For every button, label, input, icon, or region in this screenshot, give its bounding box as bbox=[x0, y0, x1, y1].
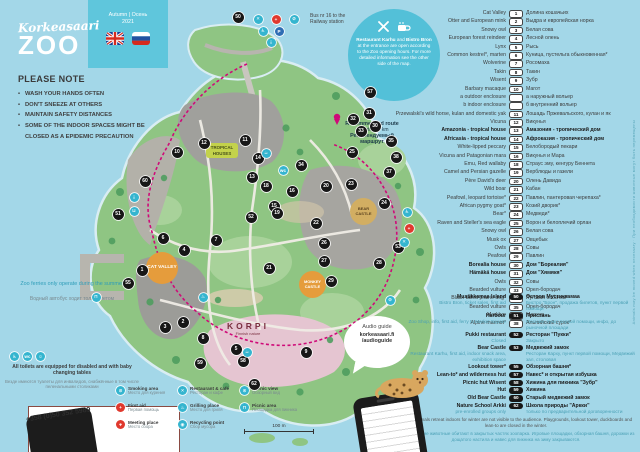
animal-number-badge: 29 bbox=[509, 253, 523, 261]
phone-screen bbox=[361, 400, 422, 452]
animal-name-en: Emu, Red wallaby bbox=[390, 161, 506, 167]
animal-name-ru: Лошадь Пржевальского, кулан и як bbox=[526, 111, 638, 117]
map-key-item: ✕ Restaurant & café Ресторан и кафе bbox=[178, 386, 240, 403]
bear-castle-label: BEAR CASTLE bbox=[350, 198, 377, 225]
animal-number-badge: 7 bbox=[509, 60, 523, 68]
animal-legend-row: b indoor enclosure б внутренний вольер bbox=[390, 102, 638, 110]
animal-legend-row: European forest reindeer 4 Лесной олень bbox=[390, 35, 638, 43]
animal-legend-row: Camel and Persian gazelle 19 Верблюды и … bbox=[390, 169, 638, 177]
animal-legend-row: Emu, Red wallaby 18 Страус эму, кенгуру … bbox=[390, 161, 638, 169]
russia-flag-icon bbox=[132, 32, 150, 45]
map-marker-21: 21 bbox=[264, 263, 275, 274]
season-label: Autumn | Осень bbox=[88, 12, 168, 19]
facility-name-ru: Хижина bbox=[526, 387, 638, 393]
facility-detail-ru: Бистро "Брон", продажа билетов, пункт пе… bbox=[526, 300, 638, 311]
facility-number-badge: 50 bbox=[509, 294, 523, 300]
animal-legend-row: Peafowl 29 Павлин bbox=[390, 253, 638, 261]
animal-legend-row: Raven and Steller's sea eagle 25 Ворон и… bbox=[390, 220, 638, 228]
map-marker-5: 5 bbox=[231, 344, 242, 355]
parking-icon: P bbox=[275, 27, 284, 36]
facility-legend-row: Mustikkamaa Island Bistro Bron, ticket s… bbox=[390, 294, 638, 312]
map-key-icon: + bbox=[116, 403, 125, 412]
animal-number-badge: 20 bbox=[509, 178, 523, 186]
map-marker-10: 10 bbox=[172, 147, 183, 158]
map-key-item: ⊘ Smoking area Место для курения bbox=[116, 386, 178, 403]
map-key-icon: ⌖ bbox=[116, 420, 125, 429]
facility-detail-en: Bistro Bron, ticket sales, first aid bbox=[390, 300, 506, 306]
facility-detail-en: Restaurant Karhu, first aid, indoor snac… bbox=[390, 351, 506, 362]
animal-name-en: Barbary macaque bbox=[390, 86, 506, 92]
facility-name-ru: Хижина для пикника "Зубр" bbox=[526, 380, 638, 386]
animal-name-ru: Зубр bbox=[526, 77, 638, 83]
animal-name-en: Snowy owl bbox=[390, 27, 506, 33]
facility-legend-row: Nature School Arkki pre-enrolled groups … bbox=[390, 403, 638, 415]
animal-legend-row: Owls 28 Совы bbox=[390, 245, 638, 253]
animal-legend-row: a outdoor enclosure а наружный вольер bbox=[390, 94, 638, 102]
map-key-item: ♨ Grilling place Место для гриля bbox=[178, 403, 240, 420]
animal-number-badge: 28 bbox=[509, 245, 523, 253]
footnotes: *Some animals retreat indoors for winter… bbox=[396, 417, 636, 443]
shop-icon: ⊔ bbox=[130, 207, 139, 216]
map-key-item: + First aid Первая помощь bbox=[116, 403, 178, 420]
map-marker-60: 60 bbox=[140, 176, 151, 187]
facility-legend-row: Harbour Zoo Shop, info, first aid, ferry… bbox=[390, 313, 638, 331]
toilet-icon: wc bbox=[23, 352, 32, 361]
ferry-note: Zoo ferries only operate during the summ… bbox=[4, 281, 140, 303]
animal-legend-row: Snowy owl 3 Белая сова bbox=[390, 27, 638, 35]
animal-name-ru: Викунья и Мара bbox=[526, 153, 638, 159]
map-marker-62: 62 bbox=[249, 379, 260, 390]
animal-number-badge: 11 bbox=[509, 111, 523, 119]
animal-number-badge: 32 bbox=[509, 279, 523, 287]
animal-name-ru: Такин bbox=[526, 69, 638, 75]
animal-legend-row: Wolverine 7 Росомаха bbox=[390, 60, 638, 68]
facility-number-badge: 62 bbox=[509, 403, 523, 409]
cutlery-icon bbox=[377, 20, 390, 33]
map-key-icon: ⊙ bbox=[240, 386, 249, 395]
map-marker-30: 30 bbox=[370, 121, 381, 132]
map-marker-7: 7 bbox=[211, 235, 222, 246]
please-note-bullet: • DON'T SNEEZE AT OTHERS bbox=[18, 100, 146, 111]
animal-name-ru: Афроказия - тропический дом bbox=[526, 136, 638, 142]
animal-number-badge: 9 bbox=[509, 77, 523, 85]
animal-name-en: Wild boar bbox=[390, 186, 506, 192]
picnic-area-icon: ⊓ bbox=[92, 293, 101, 302]
animal-name-en: Vicuna and Patagonian mara bbox=[390, 153, 506, 159]
animal-name-ru: Кабан bbox=[526, 186, 638, 192]
animal-legend-row: Takin 8 Такин bbox=[390, 69, 638, 77]
uk-flag-icon bbox=[106, 32, 124, 45]
animal-name-en: Takin bbox=[390, 69, 506, 75]
map-marker-22: 22 bbox=[311, 218, 322, 229]
animal-name-ru: Орел-бородач bbox=[526, 287, 638, 293]
animal-legend-row: Peafowl, leopard tortoise* 22 Павлин, па… bbox=[390, 195, 638, 203]
animal-name-ru: а наружный вольер bbox=[526, 94, 638, 100]
map-marker-57: 57 bbox=[365, 87, 376, 98]
map-marker-1: 1 bbox=[137, 265, 148, 276]
map-marker-11: 11 bbox=[240, 135, 251, 146]
animal-legend-row: Hämäkä house 31 Дом "Хямякя" bbox=[390, 270, 638, 278]
animal-number-badge: 3 bbox=[509, 27, 523, 35]
map-marker-4: 4 bbox=[179, 245, 190, 256]
facility-name-ru: Обзорная башня* bbox=[526, 364, 638, 370]
animal-name-ru: Олень Давида bbox=[526, 178, 638, 184]
animal-number-badge: 15 bbox=[509, 144, 523, 152]
animal-name-ru: Ворон и белоплечий орлан bbox=[526, 220, 638, 226]
animal-name-en: Przewalski's wild horse, kulan and domes… bbox=[390, 111, 506, 117]
facility-number-badge: 52 bbox=[509, 332, 523, 338]
animal-legend-row: Borealia house 30 Дом "Бореалия" bbox=[390, 262, 638, 270]
korpi-label: KORPI Finnish nature bbox=[220, 321, 276, 336]
animal-legend-row: White-lipped peccary 15 Белобородый пека… bbox=[390, 144, 638, 152]
facility-name-ru: Старый медвежий замок bbox=[526, 395, 638, 401]
please-note-bullet: • MAINTAIN SAFETY DISTANCES bbox=[18, 110, 146, 121]
facility-number-badge: 60 bbox=[509, 395, 523, 401]
restaurant-icon: ✕ bbox=[400, 238, 409, 247]
animal-name-en: a outdoor enclosure bbox=[390, 94, 506, 100]
animal-number-badge bbox=[509, 102, 523, 110]
please-note-bullet: • SOME OF THE INDOOR SPACES MIGHT BE CLO… bbox=[18, 121, 146, 142]
facility-detail-ru: Магазин, пункт первой помощи, инфо, до р… bbox=[526, 319, 638, 330]
map-marker-12: 12 bbox=[199, 138, 210, 149]
map-marker-6: 6 bbox=[158, 233, 169, 244]
animal-number-badge: 13 bbox=[509, 127, 523, 135]
animal-name-en: Lynx bbox=[390, 44, 506, 50]
animal-number-badge: 25 bbox=[509, 220, 523, 228]
ferry-note-ru: Водный автобус ходит только летом bbox=[4, 296, 140, 303]
animal-number-badge: 8 bbox=[509, 69, 523, 77]
map-marker-2: 2 bbox=[178, 317, 189, 328]
animal-name-ru: Верблюды и газели bbox=[526, 169, 638, 175]
cat-valley-label: CAT VALLEY bbox=[146, 252, 178, 284]
animal-name-ru: Павлин bbox=[526, 253, 638, 259]
animal-number-badge: 26 bbox=[509, 228, 523, 236]
map-key-icon: ◉ bbox=[178, 420, 187, 429]
animal-name-ru: Дом "Бореалия" bbox=[526, 262, 638, 268]
smoking-area-icon: ⊘ bbox=[290, 15, 299, 24]
animal-number-badge: 6 bbox=[509, 52, 523, 60]
footnote-en: *Some animals retreat indoors for winter… bbox=[396, 417, 636, 428]
zoo-map-page: Autumn | Осень 2021 Korkeasaari ZOO PLEA… bbox=[0, 0, 640, 452]
animal-legend-row: Wisent 9 Зубр bbox=[390, 77, 638, 85]
animal-name-ru: Белая сова bbox=[526, 27, 638, 33]
animal-number-badge: 1 bbox=[509, 10, 523, 18]
animal-name-ru: Совы bbox=[526, 245, 638, 251]
map-marker-19: 19 bbox=[272, 208, 283, 219]
animal-number-badge: 10 bbox=[509, 86, 523, 94]
map-key-item: ⊙ Scenic view Обзорный вид bbox=[240, 386, 302, 403]
map-marker-3: 3 bbox=[160, 322, 171, 333]
animal-name-en: White-lipped peccary bbox=[390, 144, 506, 150]
animal-name-ru: Совы bbox=[526, 279, 638, 285]
map-key-icon: ⊘ bbox=[116, 386, 125, 395]
animal-number-badge: 18 bbox=[509, 161, 523, 169]
animal-name-ru: Долина кошачьих bbox=[526, 10, 638, 16]
map-marker-33: 33 bbox=[356, 126, 367, 137]
first-aid-icon: + bbox=[272, 15, 281, 24]
map-marker-25: 25 bbox=[347, 147, 358, 158]
map-key-icon: ♨ bbox=[178, 403, 187, 412]
footnote-ru: *Зимой многие животные обитают в закрыты… bbox=[396, 431, 636, 442]
map-marker-55: 55 bbox=[123, 278, 134, 289]
tropical-houses-label: TROPICAL HOUSES bbox=[206, 143, 238, 158]
map-marker-34: 34 bbox=[296, 160, 307, 171]
animal-name-en: European forest reindeer bbox=[390, 35, 506, 41]
map-marker-38: 38 bbox=[391, 152, 402, 163]
map-marker-27: 27 bbox=[319, 256, 330, 267]
animal-name-ru: Росомаха bbox=[526, 60, 638, 66]
animal-number-badge: 19 bbox=[509, 169, 523, 177]
animal-name-ru: Магот bbox=[526, 86, 638, 92]
facility-number-badge: 51 bbox=[509, 313, 523, 319]
animal-legend-row: Africasia - tropical house 14 Афроказия … bbox=[390, 136, 638, 144]
animal-number-badge: 12 bbox=[509, 119, 523, 127]
animal-name-en: Père David's deer bbox=[390, 178, 506, 184]
info-icon: i bbox=[267, 38, 276, 47]
animal-legend-row: Cat Valley 1 Долина кошачьих bbox=[390, 10, 638, 18]
animal-name-ru: Белобородый пекари bbox=[526, 144, 638, 150]
map-marker-51: 51 bbox=[113, 209, 124, 220]
map-key-icon: ✕ bbox=[178, 386, 187, 395]
animal-legend-row: Otter and European mink 2 Выдра и европе… bbox=[390, 18, 638, 26]
facility-detail-ru: только по предварительной договоренности bbox=[526, 409, 638, 415]
map-marker-52: 52 bbox=[246, 212, 257, 223]
animal-legend-row: Amazonia - tropical house 13 Амазония - … bbox=[390, 127, 638, 135]
facility-detail-ru: Ресторан Карху, пункт первой помощи, Мед… bbox=[526, 351, 638, 362]
animal-number-badge: 22 bbox=[509, 195, 523, 203]
animal-name-en: Wolverine bbox=[390, 60, 506, 66]
animal-name-en: Bearded vulture bbox=[390, 287, 506, 293]
cafe-icon: ☕ bbox=[243, 348, 252, 357]
facility-number-badge: 53 bbox=[509, 345, 523, 351]
animal-number-badge: 23 bbox=[509, 203, 523, 211]
side-note-vertical: Animals may be moved when necessary · Пр… bbox=[631, 120, 636, 324]
map-marker-59: 59 bbox=[195, 358, 206, 369]
map-marker-26: 26 bbox=[319, 238, 330, 249]
date-box: Autumn | Осень 2021 bbox=[88, 0, 168, 68]
animal-number-badge bbox=[509, 94, 523, 102]
map-marker-37: 37 bbox=[384, 167, 395, 178]
audio-guide-bubble: Audio guide korkeasaari.fi /audioguide bbox=[344, 316, 410, 368]
animal-number-badge: 2 bbox=[509, 18, 523, 26]
animal-number-badge: 4 bbox=[509, 35, 523, 43]
animal-legend-row: Vicuna 12 Викунья bbox=[390, 119, 638, 127]
first-aid-icon: + bbox=[405, 224, 414, 233]
animal-legend-row: African pygmy goat* 23 Козий дворик* bbox=[390, 203, 638, 211]
map-marker-16: 16 bbox=[287, 186, 298, 197]
map-marker-8: 8 bbox=[198, 333, 209, 344]
animal-legend-row: Common kestrel*, marten 6 Куница, пустел… bbox=[390, 52, 638, 60]
animal-name-en: Cat Valley bbox=[390, 10, 506, 16]
restaurant-icon: ✕ bbox=[254, 15, 263, 24]
animal-legend-row: Musk ox 27 Овцебык bbox=[390, 237, 638, 245]
map-marker-58: 58 bbox=[238, 356, 249, 367]
animal-legend-row: Przewalski's wild horse, kulan and domes… bbox=[390, 111, 638, 119]
animal-name-ru: Лесной олень bbox=[526, 35, 638, 41]
wheelchair-icon: ♿ bbox=[403, 208, 412, 217]
baby-care-icon: ☺ bbox=[36, 352, 45, 361]
animal-legend-row: Wild boar 21 Кабан bbox=[390, 186, 638, 194]
map-key-item: ⌖ Meeting place Место сбора bbox=[116, 420, 178, 437]
map-marker-50: 50 bbox=[233, 12, 244, 23]
wheelchair-icon: ♿ bbox=[10, 352, 19, 361]
animal-name-en: Wisent bbox=[390, 77, 506, 83]
animal-name-ru: Выдра и европейская норка bbox=[526, 18, 638, 24]
year-label: 2021 bbox=[88, 19, 168, 26]
animal-name-en: Peafowl bbox=[390, 253, 506, 259]
map-marker-35: 35 bbox=[386, 136, 397, 147]
animal-name-ru: Амазония - тропический дом bbox=[526, 127, 638, 133]
animal-name-en: Common kestrel*, marten bbox=[390, 52, 506, 58]
scale-label: 100 m bbox=[244, 424, 314, 429]
animal-number-badge: 24 bbox=[509, 211, 523, 219]
wc-icon: wc bbox=[279, 166, 288, 175]
animal-number-badge: 27 bbox=[509, 237, 523, 245]
animal-legend-row: Barbary macaque 10 Магот bbox=[390, 86, 638, 94]
animal-name-en: Peafowl, leopard tortoise* bbox=[390, 195, 506, 201]
logo-main-text: ZOO bbox=[18, 34, 88, 56]
wheelchair-icon: ♿ bbox=[259, 27, 268, 36]
map-marker-24: 24 bbox=[379, 198, 390, 209]
animal-name-ru: Страус эму, кенгуру Беннета bbox=[526, 161, 638, 167]
animal-name-ru: Белая сова bbox=[526, 228, 638, 234]
bullet-icon: • bbox=[18, 110, 22, 121]
animal-name-en: Borealia house bbox=[390, 262, 506, 268]
animal-legend: Cat Valley 1 Долина кошачьих Otter and E… bbox=[390, 10, 638, 329]
facility-legend-row: Bear Castle Restaurant Karhu, first aid,… bbox=[390, 345, 638, 363]
animal-name-ru: Козий дворик* bbox=[526, 203, 638, 209]
scenic-view-icon: ⊙ bbox=[386, 296, 395, 305]
bullet-icon: • bbox=[18, 89, 22, 100]
map-key-icon: ⊓ bbox=[240, 403, 249, 412]
animal-name-en: Hämäkä house bbox=[390, 270, 506, 276]
facility-number-badge: 57 bbox=[509, 372, 523, 378]
animal-legend-row: Lynx 5 Рысь bbox=[390, 44, 638, 52]
animal-legend-row: Snowy owl 26 Белая сова bbox=[390, 228, 638, 236]
facility-number-badge: 59 bbox=[509, 387, 523, 393]
map-key-item: ◉ Recycling point Сбор мусора bbox=[178, 420, 240, 437]
animal-legend-row: Bear* 24 Медведи* bbox=[390, 211, 638, 219]
animal-legend-row: Vicuna and Patagonian mara 16 Викунья и … bbox=[390, 153, 638, 161]
map-marker-20: 20 bbox=[321, 181, 332, 192]
map-marker-28: 28 bbox=[374, 258, 385, 269]
animal-name-ru: Медведи* bbox=[526, 211, 638, 217]
animal-name-ru: Викунья bbox=[526, 119, 638, 125]
animal-legend-row: Owls 32 Совы bbox=[390, 279, 638, 287]
bus-note: Bus nr 16 to the Railway station bbox=[310, 13, 356, 26]
animal-number-badge: 16 bbox=[509, 153, 523, 161]
animal-number-badge: 14 bbox=[509, 136, 523, 144]
grilling-place-icon: ♨ bbox=[199, 293, 208, 302]
map-marker-9: 9 bbox=[301, 347, 312, 358]
animal-number-badge: 31 bbox=[509, 270, 523, 278]
ferry-note-en: Zoo ferries only operate during the summ… bbox=[4, 281, 140, 288]
facility-number-badge: 58 bbox=[509, 380, 523, 386]
facility-detail-ru: Закрыто bbox=[526, 338, 638, 344]
accessibility-icons: ♿ wc ☺ bbox=[10, 352, 45, 361]
map-marker-23: 23 bbox=[346, 179, 357, 190]
map-marker-18: 18 bbox=[261, 181, 272, 192]
cafe-icon: ☕ bbox=[262, 149, 271, 158]
animal-name-en: Camel and Persian gazelle bbox=[390, 169, 506, 175]
map-marker-31: 31 bbox=[364, 108, 375, 119]
phone-number: +358 (0)50 352 5989 bbox=[25, 406, 103, 452]
animal-name-en: Owls bbox=[390, 279, 506, 285]
map-marker-29: 29 bbox=[326, 276, 337, 287]
animal-number-badge: 21 bbox=[509, 186, 523, 194]
animal-name-en: Otter and European mink bbox=[390, 18, 506, 24]
animal-name-ru: Павлин, пантеровая черепаха* bbox=[526, 195, 638, 201]
facility-name-ru: Навес* и открытая избушка bbox=[526, 372, 638, 378]
scale-bar: 100 m bbox=[244, 424, 314, 432]
animal-name-ru: б внутренний вольер bbox=[526, 102, 638, 108]
please-note-title: PLEASE NOTE bbox=[18, 74, 146, 84]
logo-script-text: Korkeasaari bbox=[18, 19, 88, 35]
please-note-panel: PLEASE NOTE • WASH YOUR HANDS OFTEN • DO… bbox=[18, 74, 146, 143]
animal-name-ru: Рысь bbox=[526, 44, 638, 50]
monkey-castle-label: MONKEY CASTLE bbox=[299, 271, 326, 298]
animal-name-ru: Дом "Хямякя" bbox=[526, 270, 638, 276]
animal-legend-row: Père David's deer 20 Олень Давида bbox=[390, 178, 638, 186]
map-marker-13: 13 bbox=[247, 172, 258, 183]
facility-legend-row: Pukki restaurant Closed 52 Ресторан "Пук… bbox=[390, 332, 638, 344]
bullet-icon: • bbox=[18, 100, 22, 111]
animal-name-ru: Куница, пустельга обыкновенная* bbox=[526, 52, 638, 58]
animal-number-badge: 5 bbox=[509, 44, 523, 52]
bullet-icon: • bbox=[18, 121, 22, 142]
please-note-bullet: • WASH YOUR HANDS OFTEN bbox=[18, 89, 146, 100]
map-marker-32: 32 bbox=[348, 114, 359, 125]
map-key-item: ⊓ Picnic area Площадка для пикника bbox=[240, 403, 302, 420]
animal-number-badge: 30 bbox=[509, 262, 523, 270]
facility-number-badge: 55 bbox=[509, 364, 523, 370]
zoo-logo: Korkeasaari ZOO bbox=[18, 20, 88, 56]
animal-name-ru: Овцебык bbox=[526, 237, 638, 243]
leopard-cub-illustration bbox=[372, 366, 434, 400]
info-icon: i bbox=[130, 193, 139, 202]
animal-name-en: b indoor enclosure bbox=[390, 102, 506, 108]
